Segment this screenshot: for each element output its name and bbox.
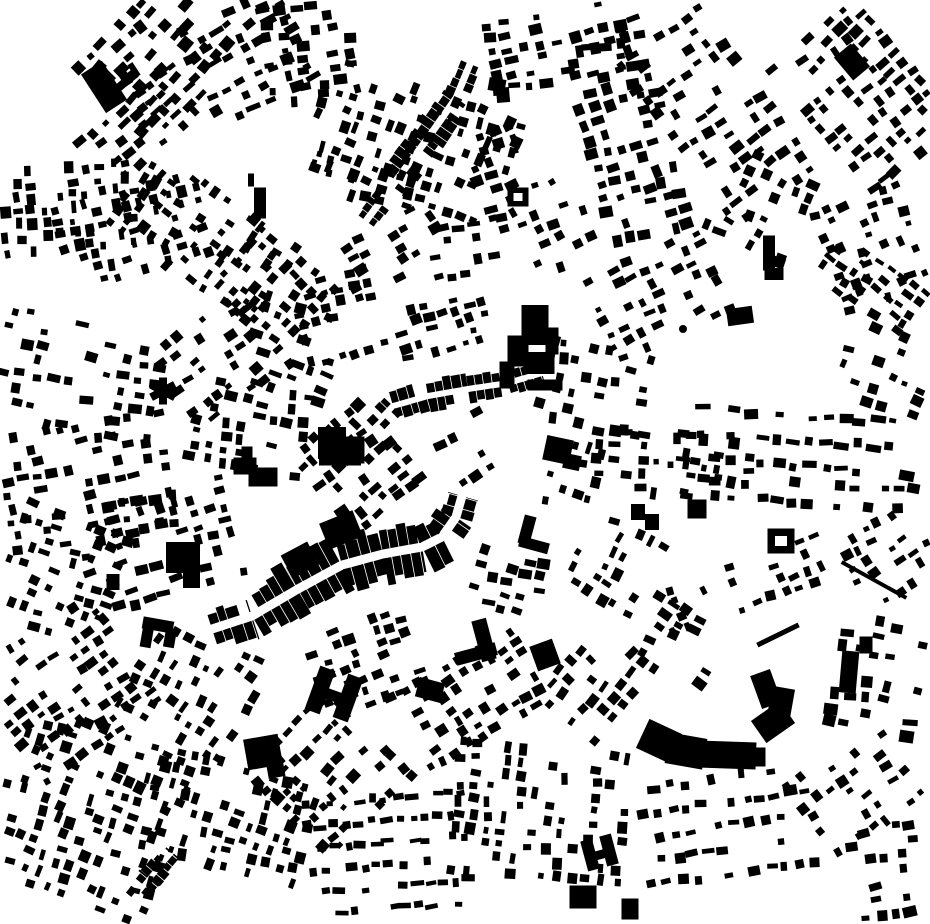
map-canvas	[0, 0, 930, 924]
figure-ground-map	[0, 0, 930, 924]
